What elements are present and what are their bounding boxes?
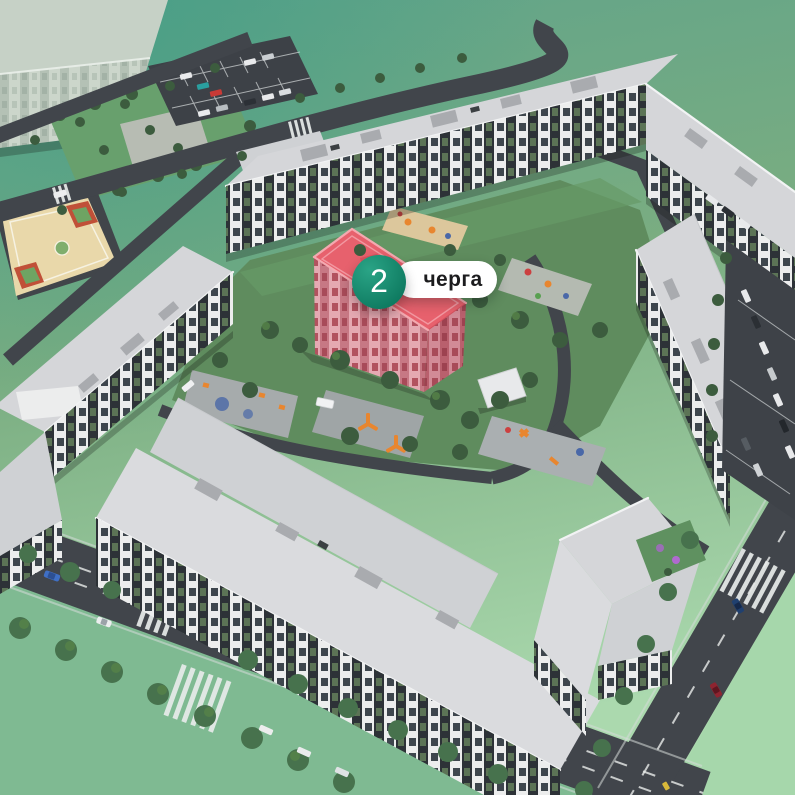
phase-label: черга — [423, 268, 482, 292]
phase-number-circle[interactable]: 2 — [352, 255, 406, 309]
phase-number: 2 — [370, 265, 388, 297]
masterplan-view: черга 2 — [0, 0, 795, 795]
masterplan-render — [0, 0, 795, 795]
phase-label-pill[interactable]: черга — [395, 261, 497, 298]
